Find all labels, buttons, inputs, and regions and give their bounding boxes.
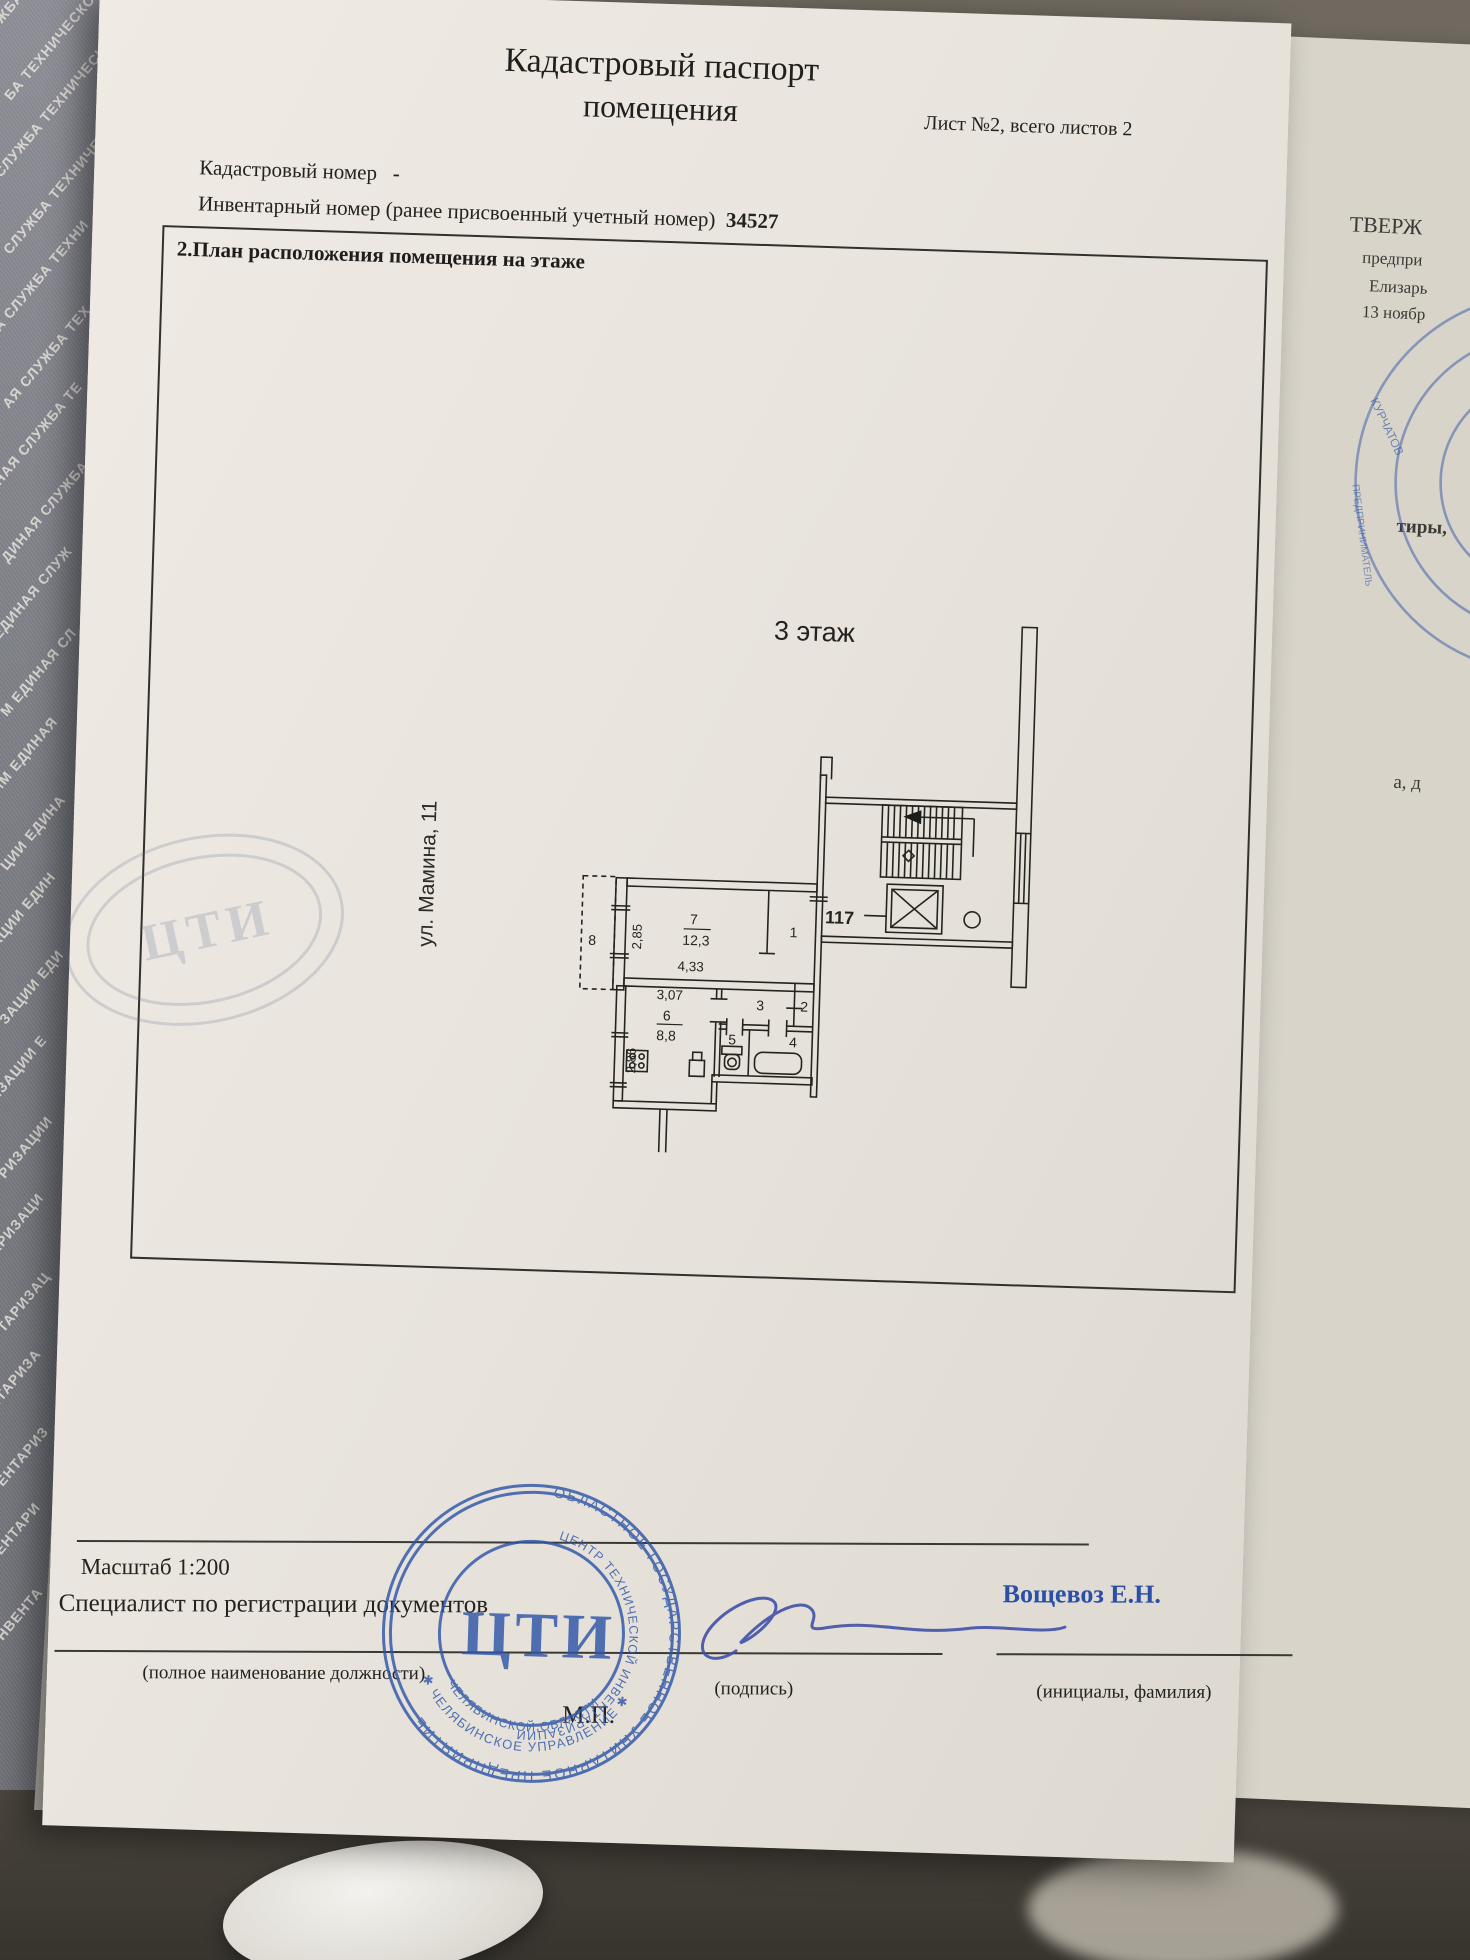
wall-connector	[711, 1082, 717, 1104]
stove-burner	[639, 1063, 644, 1068]
elevator-cross	[891, 889, 938, 928]
apartment-number: 117	[825, 907, 855, 928]
balcony-wall	[613, 878, 628, 990]
light-blob	[1028, 1848, 1338, 1960]
room5-label: 5	[728, 1031, 736, 1047]
garbage-chute	[964, 912, 980, 928]
kitchen-sink-tap	[693, 1052, 702, 1060]
photo-canvas: ЖБА ТЕХНИЧЕСКОЙБА ТЕХНИЧЕСКОЙСЛУЖБА ТЕХН…	[0, 0, 1470, 1960]
entrance-door-marks	[810, 897, 828, 902]
cover-watermark-text: ИЗАЦИИ Е	[0, 1032, 50, 1104]
wall-stub-bottom	[659, 1109, 667, 1152]
underpage-stamp-text: КУРЧАТОВ	[1367, 396, 1406, 458]
cover-watermark-text: НТАРИЗА	[0, 1346, 44, 1412]
document-title: Кадастровый паспорт помещения	[360, 34, 962, 137]
dim-room6-height: 2,86	[623, 1048, 639, 1074]
cover-watermark-text: ИМ ЕДИНАЯ	[0, 713, 61, 796]
stamp-center-text: ЦТИ	[460, 1597, 616, 1673]
underpage-stamp-text: ПРЕДПРИНИМАТЕЛЬ	[1349, 484, 1373, 588]
room3-label: 3	[756, 997, 764, 1013]
cover-watermark-text: АРИЗАЦИ	[0, 1190, 46, 1258]
underpage-text: ТВЕРЖ	[1349, 211, 1423, 240]
cadastral-number-value: -	[392, 161, 400, 185]
partial-stamp-arcs: КУРЧАТОВ ПРЕДПРИНИМАТЕЛЬ	[1291, 278, 1470, 710]
room7-top-wall	[627, 878, 817, 892]
room6-label: 6	[663, 1007, 671, 1023]
bathtub	[754, 1052, 802, 1074]
cadastral-number-row: Кадастровый номер -	[199, 155, 400, 186]
cover-watermark-text: ТАРИЗАЦ	[0, 1269, 53, 1335]
faint-stamp-text: ЦТИ	[136, 889, 279, 973]
cover-watermark-text: М ЕДИНАЯ СЛ	[0, 625, 80, 719]
cadastral-number-label: Кадастровый номер	[199, 155, 377, 185]
room4-label: 4	[789, 1034, 797, 1050]
kitchen-sink	[689, 1060, 704, 1076]
dim-room7-width: 4,33	[677, 959, 704, 975]
cover-watermark-text: РИЗАЦИИ	[0, 1113, 56, 1181]
room2-label: 2	[800, 999, 808, 1015]
room7-label: 7	[690, 911, 698, 927]
corridor-bottom-wall	[821, 936, 1012, 948]
corridor-top-wall	[826, 797, 1017, 809]
inventory-number-label: Инвентарный номер (ранее присвоенный уче…	[198, 191, 716, 231]
stair-steps-lower	[886, 842, 953, 879]
kitchen-bottom-wall	[613, 1101, 716, 1111]
sheet-info: Лист №2, всего листов 2	[924, 112, 1133, 142]
cover-watermark-text: ВЕНТАРИ	[0, 1499, 43, 1566]
scale-label: Масштаб 1:200	[81, 1554, 230, 1581]
handwritten-signature	[647, 1570, 1080, 1693]
stove-burner	[639, 1054, 644, 1059]
middle-wall	[624, 978, 814, 992]
toilet-bowl-inner	[728, 1058, 737, 1067]
inventory-number-value: 34527	[726, 208, 779, 234]
underpage-text: предпри	[1362, 248, 1423, 271]
floor-plan: 8 2,85 7 12,3 4,33 1 3,07 2,86 6 8,8 3 2…	[540, 589, 1069, 1205]
wall-wc-bath	[748, 1030, 749, 1076]
balcony	[580, 876, 617, 990]
cover-watermark-text: ЕНТАРИЗ	[0, 1423, 52, 1489]
apartment-bottom-wall	[712, 1075, 812, 1085]
round-stamp: ОБЛАСТНОЕ ГОСУДАРСТВЕННОЕ УНИТАРНОЕ ПРЕД…	[372, 1474, 692, 1794]
room6-area: 8,8	[656, 1027, 676, 1044]
room8-label: 8	[588, 932, 596, 948]
cover-watermark-text: НВЕНТА	[0, 1584, 45, 1643]
window-room7	[610, 906, 631, 959]
underpage-text: а, д	[1393, 772, 1422, 795]
wall-room7-room1	[759, 890, 777, 953]
apartment-leader-line	[864, 915, 886, 916]
dim-room7-height: 2,85	[629, 924, 645, 950]
cadastral-passport-page: Кадастровый паспорт помещения Лист №2, в…	[42, 0, 1291, 1863]
room7-area: 12,3	[682, 932, 710, 949]
dim-hall: 3,07	[656, 987, 683, 1003]
room1-label: 1	[789, 924, 797, 940]
exterior-right-wall	[1011, 627, 1037, 987]
